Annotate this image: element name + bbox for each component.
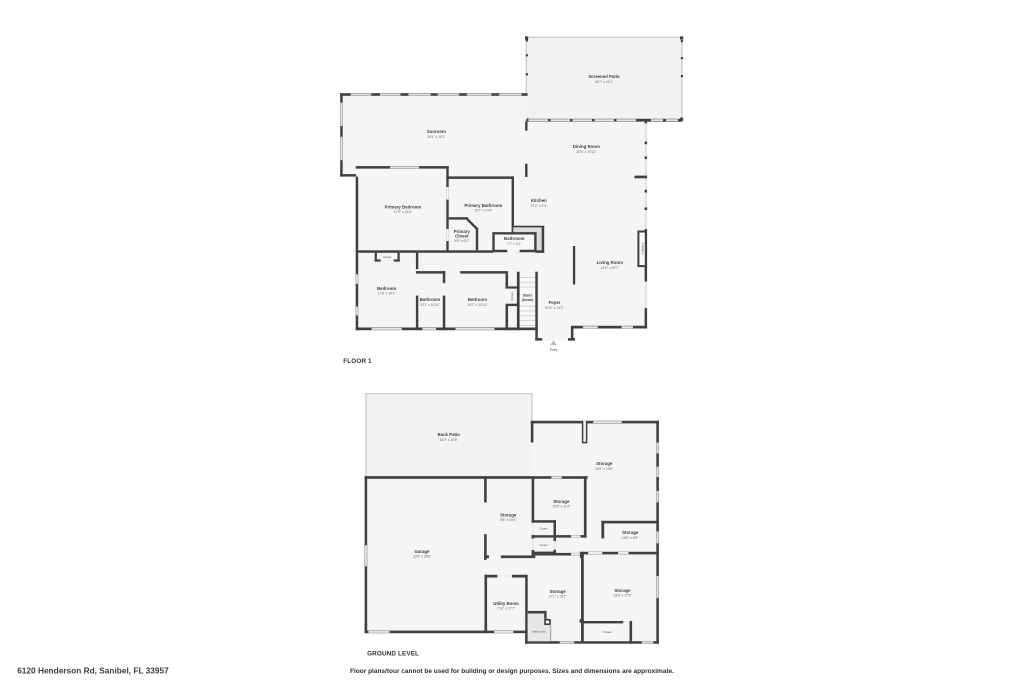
svg-text:17'8" x 15'1": 17'8" x 15'1" — [377, 292, 396, 296]
svg-text:3'11" x 10'11": 3'11" x 10'11" — [420, 303, 441, 307]
svg-text:14'8" x 29'7": 14'8" x 29'7" — [601, 266, 620, 270]
svg-text:Storage: Storage — [596, 461, 613, 466]
svg-text:12'2" x 9'4": 12'2" x 9'4" — [531, 204, 548, 208]
svg-text:Storage: Storage — [622, 530, 639, 535]
svg-text:Utility Room: Utility Room — [493, 601, 519, 606]
svg-text:Storage: Storage — [553, 499, 570, 504]
svg-text:Floor plans/tour cannot be use: Floor plans/tour cannot be used for buil… — [350, 668, 674, 675]
svg-text:Dining Room: Dining Room — [573, 144, 600, 149]
svg-text:Primary Bathroom: Primary Bathroom — [464, 203, 502, 208]
svg-text:Screened Patio: Screened Patio — [588, 74, 620, 79]
svg-text:39'4" x 16'1": 39'4" x 16'1" — [427, 135, 446, 139]
svg-text:Garage: Garage — [415, 549, 431, 554]
svg-text:Storage: Storage — [550, 589, 567, 594]
svg-text:11'1" x 13'2": 11'1" x 13'2" — [549, 595, 568, 599]
svg-text:Back Patio: Back Patio — [438, 432, 461, 437]
svg-text:Stairs (Up): Stairs (Up) — [532, 630, 546, 634]
svg-text:38'7" x 16'1": 38'7" x 16'1" — [595, 80, 614, 84]
svg-text:Closet: Closet — [539, 543, 547, 547]
svg-text:34'8" x 19'5": 34'8" x 19'5" — [595, 467, 614, 471]
svg-text:Bathroom: Bathroom — [504, 236, 525, 241]
svg-text:7'7" x 9'1": 7'7" x 9'1" — [507, 242, 522, 246]
svg-text:Sunroom: Sunroom — [427, 129, 446, 134]
svg-text:Bathroom: Bathroom — [420, 297, 441, 302]
svg-text:18'9" x 6'9": 18'9" x 6'9" — [622, 536, 639, 540]
svg-text:9'5" x 6'2": 9'5" x 6'2" — [454, 239, 469, 243]
svg-text:Closet: Closet — [383, 255, 391, 259]
svg-text:GROUND LEVEL: GROUND LEVEL — [367, 650, 419, 657]
svg-text:Storage: Storage — [614, 588, 631, 593]
svg-text:Living Room: Living Room — [597, 260, 623, 265]
svg-text:17'9" x 16'6": 17'9" x 16'6" — [394, 210, 413, 214]
svg-text:(Down): (Down) — [522, 298, 534, 302]
svg-text:Kitchen: Kitchen — [531, 198, 547, 203]
svg-text:Bedroom: Bedroom — [377, 286, 396, 291]
svg-text:Fireplace: Fireplace — [640, 242, 644, 254]
svg-text:Storage: Storage — [500, 512, 517, 517]
svg-text:20'5" x 19'11": 20'5" x 19'11" — [576, 150, 597, 154]
svg-text:7'10" x 17'7": 7'10" x 17'7" — [497, 607, 516, 611]
svg-text:Closet: Closet — [455, 234, 469, 239]
svg-text:Closet: Closet — [603, 630, 611, 634]
svg-text:23'4" x 38'6": 23'4" x 38'6" — [413, 555, 432, 559]
svg-text:Stairs: Stairs — [523, 293, 533, 297]
svg-text:Closet: Closet — [510, 292, 514, 300]
svg-text:Closet: Closet — [539, 527, 547, 531]
svg-text:Entry: Entry — [550, 348, 558, 352]
svg-text:FLOOR 1: FLOOR 1 — [343, 358, 372, 365]
svg-text:15'7" x 14'4": 15'7" x 14'4" — [474, 209, 493, 213]
svg-text:33'0" x 16'5": 33'0" x 16'5" — [440, 438, 459, 442]
svg-text:15'8" x 11'4": 15'8" x 11'4" — [552, 505, 571, 509]
svg-text:6120 Henderson Rd, Sanibel, FL: 6120 Henderson Rd, Sanibel, FL 33957 — [17, 666, 169, 676]
svg-text:Bedroom: Bedroom — [468, 297, 487, 302]
svg-text:8'10" x 13'2": 8'10" x 13'2" — [545, 306, 564, 310]
svg-text:9'5" x 15'4": 9'5" x 15'4" — [500, 518, 517, 522]
svg-text:Primary Bedroom: Primary Bedroom — [385, 204, 422, 209]
svg-text:19'8" x 17'6": 19'8" x 17'6" — [613, 594, 632, 598]
svg-text:14'7" x 10'10": 14'7" x 10'10" — [467, 303, 488, 307]
svg-text:Foyer: Foyer — [549, 300, 561, 305]
